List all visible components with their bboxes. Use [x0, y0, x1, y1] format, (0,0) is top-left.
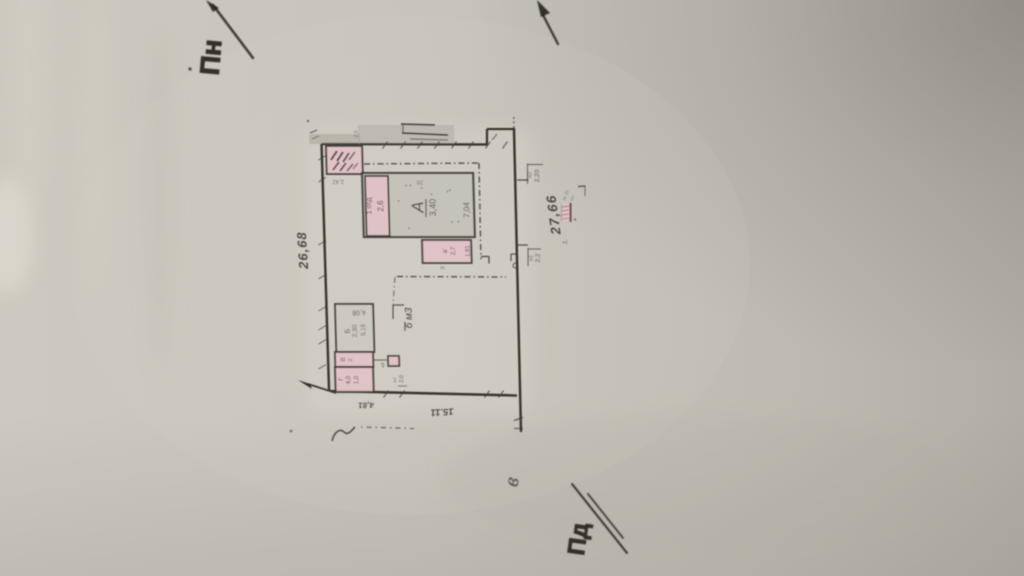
svg-text:н2: н2 — [527, 172, 533, 178]
svg-text:28: 28 — [416, 178, 424, 184]
svg-text:В: В — [341, 357, 347, 361]
svg-text:2,2: 2,2 — [534, 253, 541, 262]
svg-text:7,04: 7,04 — [462, 202, 471, 218]
svg-text:26,68: 26,68 — [294, 231, 311, 270]
svg-text:Пд: Пд — [563, 521, 594, 557]
svg-text:3,40: 3,40 — [428, 199, 438, 217]
svg-text:2,7: 2,7 — [451, 246, 457, 255]
svg-text:1,81: 1,81 — [465, 245, 471, 257]
svg-text:4,08: 4,08 — [352, 308, 366, 315]
svg-text:3: 3 — [440, 266, 446, 269]
svg-text:н8: н8 — [380, 362, 385, 367]
svg-text:2: 2 — [348, 358, 354, 361]
svg-text:2,0: 2,0 — [354, 130, 360, 137]
svg-text:1,0: 1,0 — [354, 375, 360, 384]
svg-text:А: А — [408, 201, 427, 213]
svg-text:15.11: 15.11 — [430, 405, 454, 417]
svg-text:Г: Г — [338, 377, 345, 381]
svg-text:Б: Б — [343, 328, 352, 333]
svg-text:2,42: 2,42 — [331, 178, 344, 184]
svg-text:5,19: 5,19 — [361, 324, 367, 336]
svg-text:2,6: 2,6 — [376, 200, 385, 212]
svg-text:4,0: 4,0 — [346, 375, 352, 384]
svg-text:2,0: 2,0 — [399, 375, 405, 383]
svg-text:а': а' — [442, 249, 449, 254]
svg-text:2,20: 2,20 — [534, 169, 541, 182]
svg-text:Пн: Пн — [195, 38, 228, 76]
svg-text:1 отд: 1 отд — [366, 198, 373, 215]
svg-text:н4: н4 — [392, 377, 397, 382]
svg-text:4,81: 4,81 — [358, 400, 376, 410]
svg-text:2,30: 2,30 — [352, 324, 359, 337]
